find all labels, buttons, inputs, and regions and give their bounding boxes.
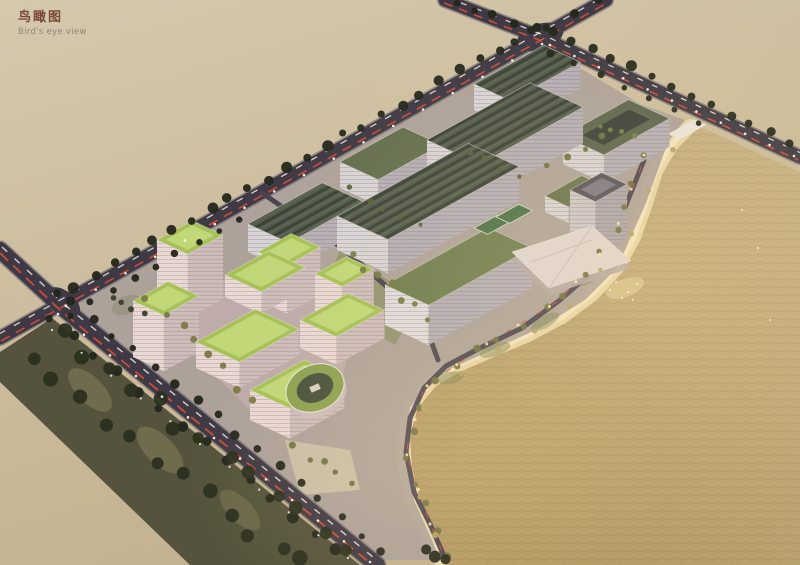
warm-glow-shore [0, 0, 800, 565]
title-block: 鸟瞰图 Bird's eye view [18, 11, 87, 37]
aerial-rendering: 鸟瞰图 Bird's eye view [0, 0, 800, 565]
title-english: Bird's eye view [18, 28, 87, 37]
atmosphere-layer [0, 0, 800, 565]
title-chinese: 鸟瞰图 [18, 11, 87, 24]
scene-svg [0, 0, 800, 565]
